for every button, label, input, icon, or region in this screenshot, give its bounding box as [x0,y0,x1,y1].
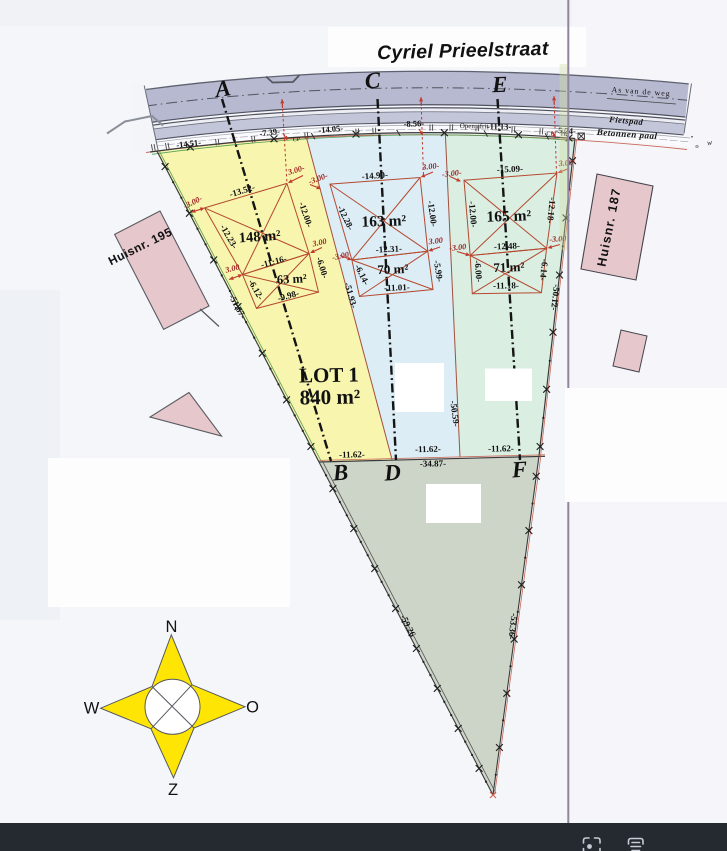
svg-text:F: F [510,457,528,483]
svg-text:Open afrit: Open afrit [460,122,489,130]
svg-text:W: W [84,700,100,718]
svg-text:O: O [246,699,259,717]
svg-text:165 m²: 165 m² [486,207,532,226]
svg-text:B: B [331,460,349,486]
svg-text:3.00-: 3.00- [421,161,440,172]
svg-text:-11.18-: -11.18- [493,280,519,290]
svg-text:-11.13-: -11.13- [487,121,512,131]
svg-text:E: E [491,72,508,98]
svg-text:71 m²: 71 m² [493,259,525,275]
svg-text:-11.62-: -11.62- [339,449,365,459]
svg-text:o: o [695,143,698,150]
svg-text:N: N [166,618,178,636]
svg-text:C: C [364,67,382,93]
svg-text:-11.62-: -11.62- [415,444,441,454]
svg-text:-14.90-: -14.90- [361,170,388,182]
svg-text:-15.09-: -15.09- [497,164,524,175]
svg-text:-6.00-: -6.00- [473,260,485,283]
svg-text:": " [691,135,694,143]
svg-text:-34.87-: -34.87- [420,458,446,468]
svg-text:CP: CP [546,131,554,137]
svg-text:-8.56-: -8.56- [403,118,424,129]
svg-text:3.00: 3.00 [427,236,443,247]
svg-text:-11.01-: -11.01- [384,282,410,293]
svg-text:70 m²: 70 m² [377,261,409,277]
svg-text:Z: Z [168,781,178,799]
svg-text:CP: CP [292,137,300,144]
svg-text:63 m²: 63 m² [277,271,308,287]
svg-text:-12.31-: -12.31- [375,243,402,254]
svg-text:840 m²: 840 m² [299,384,360,409]
svg-text:-3.00: -3.00 [449,242,467,253]
svg-text:-12|48-: -12|48- [494,241,520,252]
svg-text:148 m²: 148 m² [238,228,281,247]
svg-text:163 m²: 163 m² [361,212,407,231]
svg-text:-11.62-: -11.62- [488,443,514,453]
svg-text:Cyriel Prieelstraat: Cyriel Prieelstraat [377,38,550,65]
svg-text:D: D [382,459,402,485]
